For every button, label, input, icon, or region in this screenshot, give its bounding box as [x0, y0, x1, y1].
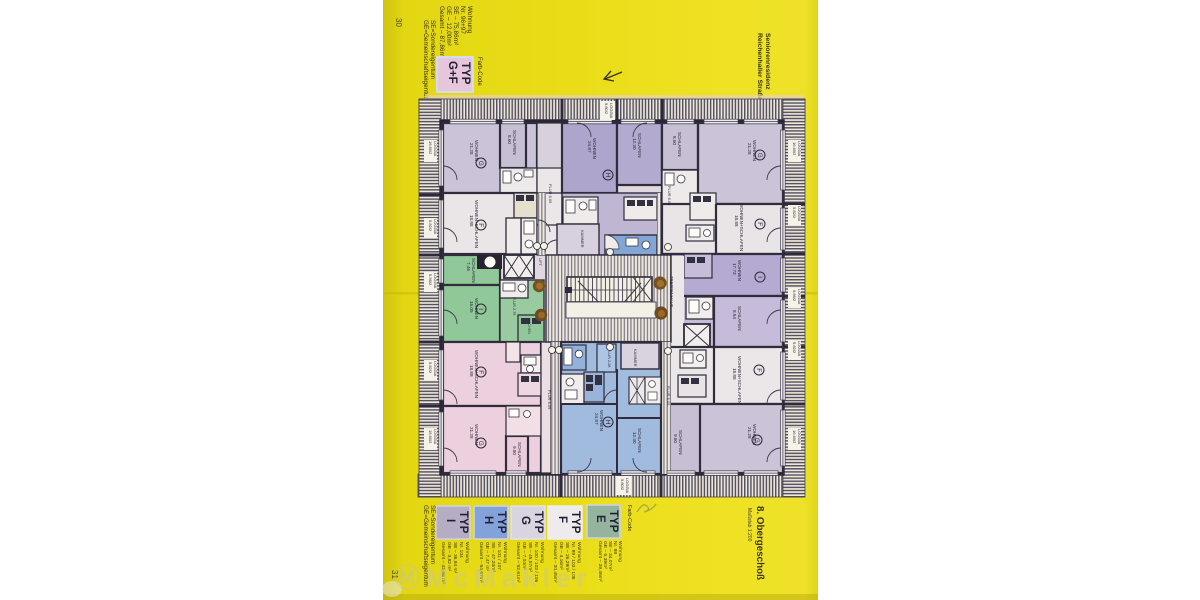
svg-text:H: H — [482, 516, 494, 524]
svg-text:Farb-Code: Farb-Code — [476, 57, 482, 86]
svg-text:Wohnung: Wohnung — [576, 542, 582, 563]
svg-text:SE=Sondereigentum: SE=Sondereigentum — [429, 20, 436, 79]
svg-text:Nr. 104: Nr. 104 — [458, 542, 464, 558]
svg-text:Wohnung: Wohnung — [539, 542, 545, 563]
svg-text:Nr. 96+97: Nr. 96+97 — [459, 6, 466, 34]
svg-text:Wohnung: Wohnung — [466, 6, 473, 34]
svg-text:E: E — [594, 515, 606, 523]
svg-text:TYP: TYP — [607, 510, 619, 533]
svg-text:I: I — [444, 519, 456, 522]
svg-text:G: G — [519, 516, 531, 525]
svg-text:Farb-Code: Farb-Code — [626, 505, 632, 531]
svg-text:Wohnung: Wohnung — [502, 542, 508, 563]
svg-text:SE – 75,86m²: SE – 75,86m² — [452, 6, 459, 45]
svg-text:SE=Sondereigentum: SE=Sondereigentum — [429, 505, 436, 564]
svg-text:Wohnung: Wohnung — [464, 542, 470, 563]
svg-text:TYP: TYP — [495, 511, 507, 534]
svg-text:G+F: G+F — [446, 61, 458, 84]
svg-text:GE – 12,00m²: GE – 12,00m² — [445, 6, 452, 46]
svg-text:8. Obergeschoß: 8. Obergeschoß — [754, 506, 765, 580]
svg-text:TYP: TYP — [532, 511, 544, 534]
svg-text:30: 30 — [394, 18, 403, 27]
svg-text:TYP: TYP — [457, 511, 469, 534]
svg-text:Maßstab 1:200: Maßstab 1:200 — [746, 508, 752, 542]
svg-text:ⓂMcMakler: ⓂMcMakler — [394, 563, 593, 593]
svg-text:F: F — [556, 516, 568, 523]
svg-text:GE=Gemeinschaftseigentum: GE=Gemeinschaftseigentum — [422, 20, 429, 102]
svg-text:Gesamt – 39,46m²: Gesamt – 39,46m² — [597, 541, 603, 582]
svg-text:Seniorenresidenz: Seniorenresidenz — [764, 33, 771, 90]
svg-text:TYP: TYP — [569, 511, 581, 534]
svg-text:Gesamt – 87,86m²: Gesamt – 87,86m² — [438, 6, 445, 59]
svg-text:TYP: TYP — [459, 62, 471, 85]
